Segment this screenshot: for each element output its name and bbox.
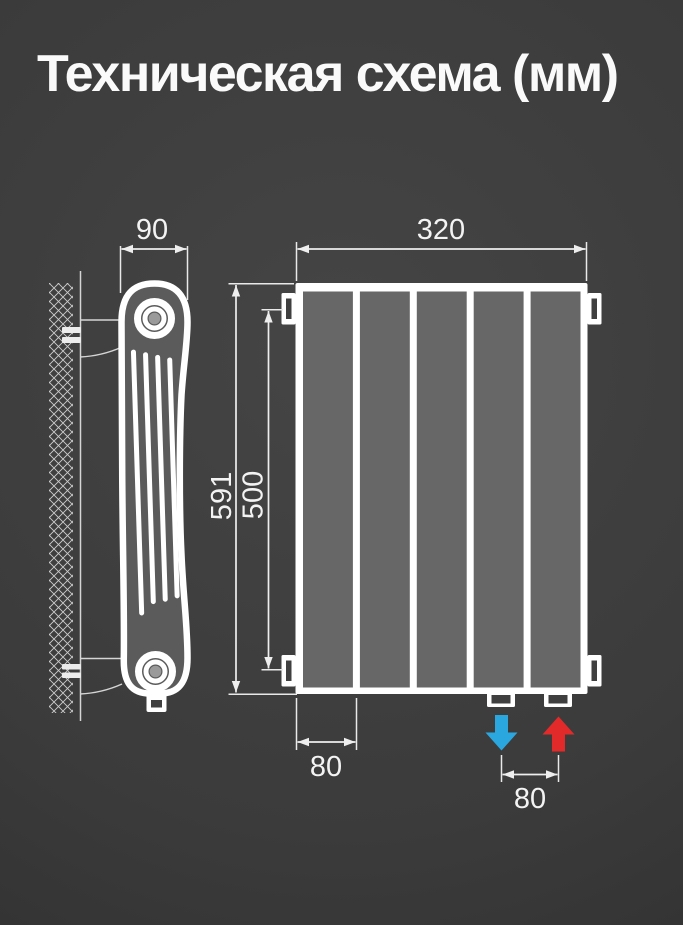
radiator-sections bbox=[303, 292, 581, 688]
outlet-arrow-icon bbox=[543, 717, 575, 752]
section-panel bbox=[417, 292, 467, 688]
radiator-side-profile bbox=[122, 284, 188, 694]
dimension-label: 500 bbox=[238, 471, 270, 519]
dimension-label: 320 bbox=[417, 214, 465, 246]
dimension-label: 591 bbox=[206, 472, 238, 520]
wall-anchor-pin bbox=[62, 337, 81, 343]
side-connector-bottom-left bbox=[282, 655, 296, 687]
section-panel bbox=[531, 292, 581, 688]
wall-anchor-pin bbox=[62, 664, 81, 670]
section-panel bbox=[360, 292, 410, 688]
dimension-label: 80 bbox=[310, 751, 342, 783]
section-panel bbox=[303, 292, 353, 688]
dimension-axle-distance: 500 bbox=[238, 310, 284, 670]
dimension-label: 90 bbox=[136, 214, 168, 246]
dimension-label: 80 bbox=[514, 783, 546, 815]
wall-anchor-pin bbox=[62, 327, 81, 333]
section-panel bbox=[474, 292, 524, 688]
inlet-arrow-icon bbox=[486, 715, 518, 751]
wall-anchor-pin bbox=[62, 673, 81, 679]
section-nipple-top bbox=[138, 302, 172, 336]
side-connector-top-left bbox=[282, 293, 296, 325]
section-nipple-bottom bbox=[139, 655, 173, 689]
dimension-connection-pitch: 80 bbox=[502, 755, 559, 815]
front-view: 320 591 500 80 bbox=[206, 214, 602, 815]
bracket-hook-line bbox=[80, 684, 122, 694]
dimension-section-width: 80 bbox=[297, 698, 357, 783]
wall-hatch bbox=[49, 283, 73, 713]
drain-plug-opening bbox=[151, 700, 162, 708]
radiator-technical-diagram: 90 bbox=[0, 0, 683, 925]
bracket-hook-line bbox=[80, 347, 122, 357]
side-view: 90 bbox=[49, 214, 188, 721]
side-connector-bottom-right bbox=[588, 655, 602, 687]
dimension-width: 320 bbox=[297, 214, 587, 281]
technical-scheme-page: Техническая схема (мм) bbox=[0, 0, 683, 925]
side-connector-top-right bbox=[588, 293, 602, 325]
